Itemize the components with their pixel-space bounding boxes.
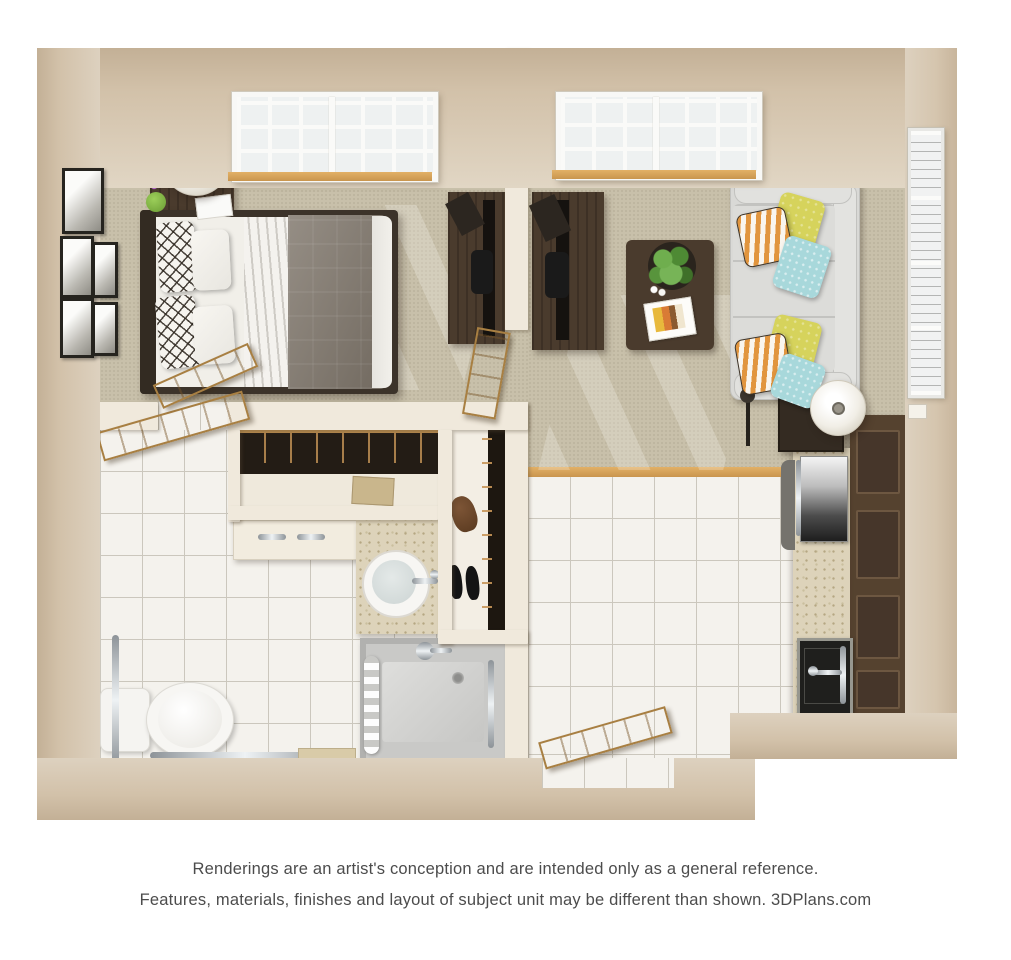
comforter-folded-edge xyxy=(372,216,392,388)
sofa-back-cushion xyxy=(833,184,857,392)
headboard xyxy=(140,210,156,394)
magazine-cover-art xyxy=(652,304,685,332)
living-room-window xyxy=(556,92,762,180)
bedroom-window-sill xyxy=(228,172,432,181)
shower-grab-bar xyxy=(488,660,494,748)
cabinet-door-panel xyxy=(856,510,900,579)
toilet-lid xyxy=(158,690,222,748)
range-handle xyxy=(796,460,801,536)
kitchen-faucet-spout xyxy=(814,670,842,675)
cabinet-door-panel xyxy=(856,595,900,659)
closet-bottom-wall xyxy=(228,506,438,520)
notepad xyxy=(195,194,233,220)
floor-plan-rendering: Renderings are an artist's conception an… xyxy=(0,0,1011,960)
bedroom-tv-base xyxy=(471,250,493,294)
wall-art-frame xyxy=(60,298,94,358)
exterior-wall-kitchen-bottom xyxy=(730,713,957,759)
exterior-wall-top xyxy=(37,48,957,188)
kitchen-faucet xyxy=(840,646,846,704)
lamp-finial xyxy=(832,402,845,415)
wall-art-frame xyxy=(62,168,104,234)
light-switch xyxy=(908,404,927,419)
shoe-closet-left-wall xyxy=(438,430,452,644)
dresser xyxy=(233,520,361,560)
disclaimer-line-2: Features, materials, finishes and layout… xyxy=(0,885,1011,916)
closet-hangers xyxy=(240,433,438,463)
shoe-closet-hangers xyxy=(482,430,492,630)
exterior-wall-left xyxy=(37,48,100,820)
cabinet-door-panel xyxy=(856,430,900,494)
cabinet-door-panel xyxy=(856,670,900,709)
shower-curtain xyxy=(364,656,379,754)
white-flowers xyxy=(648,284,668,298)
toilet-tank xyxy=(100,688,150,752)
wall-art-frame xyxy=(92,302,118,356)
bath-kitchen-divider-wall xyxy=(505,402,528,760)
flower-vase xyxy=(146,192,166,212)
dishwasher xyxy=(781,460,795,550)
carpet-tile-threshold xyxy=(528,467,792,477)
shower-arm xyxy=(430,648,452,653)
sink-basin-divider xyxy=(804,648,842,704)
shoe-closet-bottom-wall xyxy=(438,630,528,644)
shower-pan xyxy=(382,662,484,742)
dresser-handle xyxy=(258,534,286,540)
window-mullion xyxy=(329,97,335,177)
wall-art-frame xyxy=(92,242,118,298)
dresser-handle xyxy=(297,534,325,540)
storage-box xyxy=(351,476,394,506)
vanity-sink-bowl xyxy=(372,560,416,604)
kitchen-faucet-head xyxy=(808,666,818,676)
wall-art-frame xyxy=(60,236,94,298)
range xyxy=(800,456,848,542)
grab-bar xyxy=(112,635,119,765)
closet-shelf xyxy=(240,474,438,506)
living-room-window-sill xyxy=(552,170,756,179)
disclaimer-line-1: Renderings are an artist's conception an… xyxy=(0,854,1011,885)
white-pillow xyxy=(190,229,231,291)
disclaimer: Renderings are an artist's conception an… xyxy=(0,854,1011,916)
living-tv-base xyxy=(545,252,569,298)
shower-drain xyxy=(452,672,464,684)
living-room-tall-window xyxy=(908,128,944,398)
window-mullion xyxy=(653,97,659,175)
bedroom-window xyxy=(232,92,438,182)
